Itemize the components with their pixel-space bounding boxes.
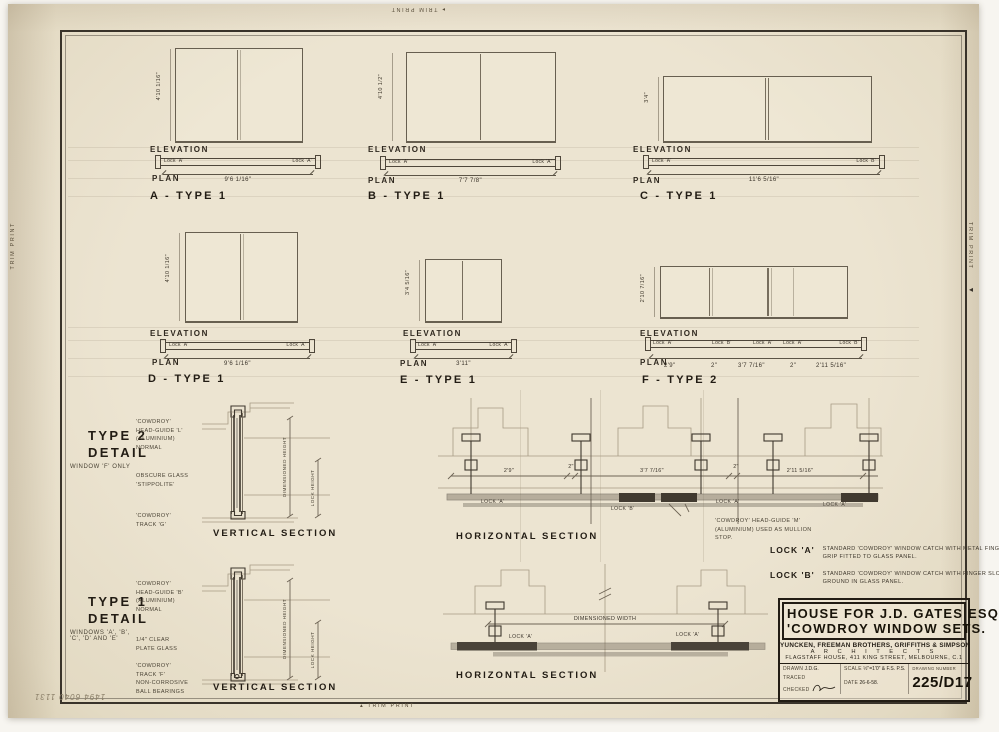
width-dimension: 9'6 1/16" (165, 358, 310, 367)
elevation-label: ELEVATION (633, 145, 692, 154)
type1-detail-subtitle: WINDOWS 'A', 'B', 'C', 'D' AND 'E' (70, 630, 130, 642)
width-dimension: 9'6 1/16" (163, 174, 313, 183)
date-value: 26-6-58. (860, 680, 879, 686)
lock-tag: Lock 'B' (839, 340, 859, 346)
title-box: HOUSE FOR J.D. GATES ESQ 'COWDROY WINDOW… (782, 602, 966, 640)
lock-tag: Lock 'A' (389, 159, 409, 165)
svg-text:2": 2" (733, 464, 739, 470)
mullion-line (240, 50, 241, 140)
type2-vertical-section-drawing: DIMENSIONED HEIGHT LOCK HEIGHT (198, 398, 343, 530)
window-unit-c: 3'4" ELEVATION Lock 'A' Lock 'B' PLAN 11… (620, 44, 882, 209)
architect-firm: YUNCKEN, FREEMAN BROTHERS, GRIFFITHS & S… (780, 642, 968, 649)
note-head-guide: 'COWDROY' HEAD-GUIDE 'B' (ALUMINIUM) NOR… (136, 580, 183, 614)
dim-line (658, 77, 659, 141)
lock-tag: Lock 'A' (292, 158, 312, 164)
note-glass: 1/4" CLEAR PLATE GLASS (136, 636, 177, 653)
window-unit-b: 4'10 1/2" ELEVATION Lock 'A' Lock 'A' PL… (360, 44, 570, 209)
mullion-line (767, 268, 769, 316)
plan-drawing: Lock 'A' Lock 'A' (415, 342, 512, 350)
svg-text:2'11 5/16": 2'11 5/16" (787, 468, 814, 474)
svg-text:LOCK HEIGHT: LOCK HEIGHT (310, 632, 315, 669)
trim-arrow-icon: ◂ (969, 285, 975, 294)
window-unit-e: 3'4 5/16" ELEVATION Lock 'A' Lock 'A' PL… (398, 222, 578, 389)
horizontal-section-top-drawing: 2'9" 2" 3'7 7/16" 2" 2'11 5/16" LOCK 'A'… (433, 398, 888, 528)
note-head-guide: 'COWDROY' HEAD-GUIDE 'L' (ALUMINIUM) NOR… (136, 418, 183, 452)
plan-dim: 3'7 7/16" (738, 363, 765, 369)
plan-drawing: Lock 'A' Lock 'A' (160, 158, 316, 166)
dim-line (648, 174, 880, 175)
elevation-drawing (660, 266, 848, 319)
unit-title: B - TYPE 1 (368, 190, 446, 202)
scale-value: ½"=1'0" & F.S. P.S. (863, 666, 905, 672)
plan-drawing: Lock 'A' Lock 'B' (648, 158, 880, 166)
mullion-line (243, 234, 244, 320)
lock-tag: Lock 'A' (653, 340, 673, 346)
lock-b-note: LOCK 'B' STANDARD 'COWDROY' WINDOW CATCH… (770, 570, 999, 587)
type1-vertical-section-drawing: DIMENSIONED HEIGHT LOCK HEIGHT (198, 560, 343, 692)
horizontal-section-bottom-drawing: DIMENSIONED WIDTH LOCK 'A' LOCK 'A' (433, 564, 778, 679)
unit-title: D - TYPE 1 (148, 373, 226, 385)
horizontal-section-bottom-caption: HORIZONTAL SECTION (456, 670, 598, 681)
height-dimension: 3'4 5/16" (405, 270, 411, 295)
elevation-drawing (425, 259, 502, 323)
note-track: 'COWDROY' TRACK 'G' (136, 512, 171, 529)
paper-sheet: 4'10 1/16" ELEVATION Lock 'A' Lock 'A' P… (8, 4, 979, 718)
plan-dim: 2'9" (664, 363, 676, 369)
mullion-line (709, 268, 710, 316)
project-title: HOUSE FOR J.D. GATES ESQ (787, 606, 961, 621)
dim-line (165, 358, 310, 359)
svg-text:DIMENSIONED HEIGHT: DIMENSIONED HEIGHT (282, 599, 287, 659)
lock-tag: Lock 'A' (169, 342, 189, 348)
mullion-line (240, 234, 241, 320)
unit-title: C - TYPE 1 (640, 190, 718, 202)
lock-tag: Lock 'A' (783, 340, 803, 346)
dim-line (163, 174, 313, 175)
plan-dim: 2'11 5/16" (816, 363, 846, 369)
trim-arrow-icon: ▴ (360, 703, 364, 709)
svg-text:LOCK 'A': LOCK 'A' (676, 632, 699, 638)
lock-tag: Lock 'A' (489, 342, 509, 348)
width-dimension: 7'7 7/8" (385, 175, 556, 184)
drawing-number: 225/D17 (912, 674, 972, 691)
width-dimension: 11'6 5/16" (648, 174, 880, 183)
drawn-column: DRAWN J.D.G. TRACED CHECKED (780, 664, 841, 694)
svg-text:3'7 7/16": 3'7 7/16" (640, 468, 664, 474)
title-block-grid: DRAWN J.D.G. TRACED CHECKED SCALE ½"=1'0… (780, 664, 968, 694)
lock-tag: Lock 'A' (164, 158, 184, 164)
svg-text:LOCK HEIGHT: LOCK HEIGHT (310, 470, 315, 507)
lock-tag: Lock 'A' (418, 342, 438, 348)
plan-drawing: Lock 'A' Lock 'B' Lock 'A' Lock 'A' Lock… (650, 340, 862, 348)
dim-line (170, 49, 171, 141)
lock-tag: Lock 'A' (753, 340, 773, 346)
height-dimension: 2'10 7/16" (640, 274, 646, 302)
plan-dim: 2" (711, 363, 717, 369)
mullion-line (771, 268, 772, 316)
dim-line (654, 267, 655, 317)
dim-line (419, 260, 420, 321)
height-dimension: 3'4" (644, 92, 650, 103)
lock-tag: Lock 'B' (856, 158, 876, 164)
dim-line (385, 175, 556, 176)
dim-line (179, 233, 180, 321)
svg-text:DIMENSIONED WIDTH: DIMENSIONED WIDTH (574, 616, 636, 622)
drawing-scan: 4'10 1/16" ELEVATION Lock 'A' Lock 'A' P… (0, 0, 999, 732)
mullion-line (793, 268, 794, 316)
unit-title: A - TYPE 1 (150, 190, 227, 202)
scale-date-column: SCALE ½"=1'0" & F.S. P.S. DATE 26-6-58. (841, 664, 909, 694)
mullion-stop-note: 'COWDROY' HEAD-GUIDE 'M' (ALUMINIUM) USE… (715, 517, 820, 543)
elevation-label: ELEVATION (150, 145, 209, 154)
lock-a-note: LOCK 'A' STANDARD 'COWDROY' WINDOW CATCH… (770, 545, 999, 562)
handwritten-note: 1494 6040 1131 (34, 692, 105, 701)
window-unit-a: 4'10 1/16" ELEVATION Lock 'A' Lock 'A' P… (140, 44, 340, 209)
mullion-line (237, 50, 238, 140)
elevation-drawing (663, 76, 872, 143)
dim-line (392, 53, 393, 141)
elevation-drawing (406, 52, 556, 143)
elevation-label: ELEVATION (368, 145, 427, 154)
mullion-line (480, 54, 481, 140)
note-track: 'COWDROY' TRACK 'F' NON-CORROSIVE BALL B… (136, 662, 188, 696)
elevation-drawing (185, 232, 298, 323)
window-unit-f: 2'10 7/16" ELEVATION Lock 'A' Lock 'B' L… (638, 222, 888, 392)
note-glass: OBSCURE GLASS 'STIPPOLITE' (136, 472, 188, 489)
dim-line (415, 358, 512, 359)
svg-text:2": 2" (568, 464, 574, 470)
height-dimension: 4'10 1/2" (378, 74, 384, 99)
title-block: HOUSE FOR J.D. GATES ESQ 'COWDROY WINDOW… (778, 598, 970, 702)
unit-title: E - TYPE 1 (400, 374, 477, 386)
svg-text:LOCK 'A': LOCK 'A' (509, 634, 532, 640)
lock-tag: Lock 'A' (286, 342, 306, 348)
plan-drawing: Lock 'A' Lock 'A' (165, 342, 310, 350)
trim-print-top: ▸ TRIM PRINT (390, 6, 445, 12)
horizontal-section-top-caption: HORIZONTAL SECTION (456, 531, 598, 542)
height-dimension: 4'10 1/16" (165, 254, 171, 282)
lock-tag: Lock 'B' (712, 340, 732, 346)
elevation-drawing (175, 48, 303, 143)
trim-print-right: TRIM PRINT (967, 222, 973, 269)
drawing-number-column: DRAWING NUMBER 225/D17 (909, 664, 975, 694)
type2-vertical-section-caption: VERTICAL SECTION (213, 528, 337, 539)
drawn-by: J.D.G. (805, 666, 819, 672)
dim-line (650, 358, 862, 359)
plan-drawing: Lock 'A' Lock 'A' (385, 159, 556, 167)
trim-print-left: TRIM PRINT (10, 222, 16, 269)
mullion-line (765, 78, 766, 140)
lock-tag: Lock 'A' (532, 159, 552, 165)
drawing-subject: 'COWDROY WINDOW SETS. (787, 621, 961, 636)
width-dimension: 3'11" (415, 358, 512, 367)
svg-text:2'9": 2'9" (504, 468, 514, 474)
window-unit-d: 4'10 1/16" ELEVATION Lock 'A' Lock 'A' P… (140, 222, 340, 389)
elevation-label: ELEVATION (403, 329, 462, 338)
type2-detail-subtitle: WINDOW 'F' ONLY (70, 464, 131, 470)
type1-vertical-section-caption: VERTICAL SECTION (213, 682, 337, 693)
svg-text:DIMENSIONED HEIGHT: DIMENSIONED HEIGHT (282, 437, 287, 497)
mullion-line (768, 78, 769, 140)
mullion-line (712, 268, 713, 316)
trim-arrow-icon: ▸ (441, 6, 445, 12)
signature-icon (811, 683, 837, 693)
trim-print-bottom: ▴ TRIM PRINT (360, 703, 415, 709)
firm-address: FLAGSTAFF HOUSE, 411 KING STREET, MELBOU… (780, 655, 968, 664)
unit-title: F - TYPE 2 (642, 374, 718, 386)
height-dimension: 4'10 1/16" (156, 72, 162, 100)
lock-tag: Lock 'A' (652, 158, 672, 164)
elevation-label: ELEVATION (150, 329, 209, 338)
plan-dim: 2" (790, 363, 796, 369)
width-dimension (650, 358, 862, 359)
mullion-line (462, 261, 463, 320)
